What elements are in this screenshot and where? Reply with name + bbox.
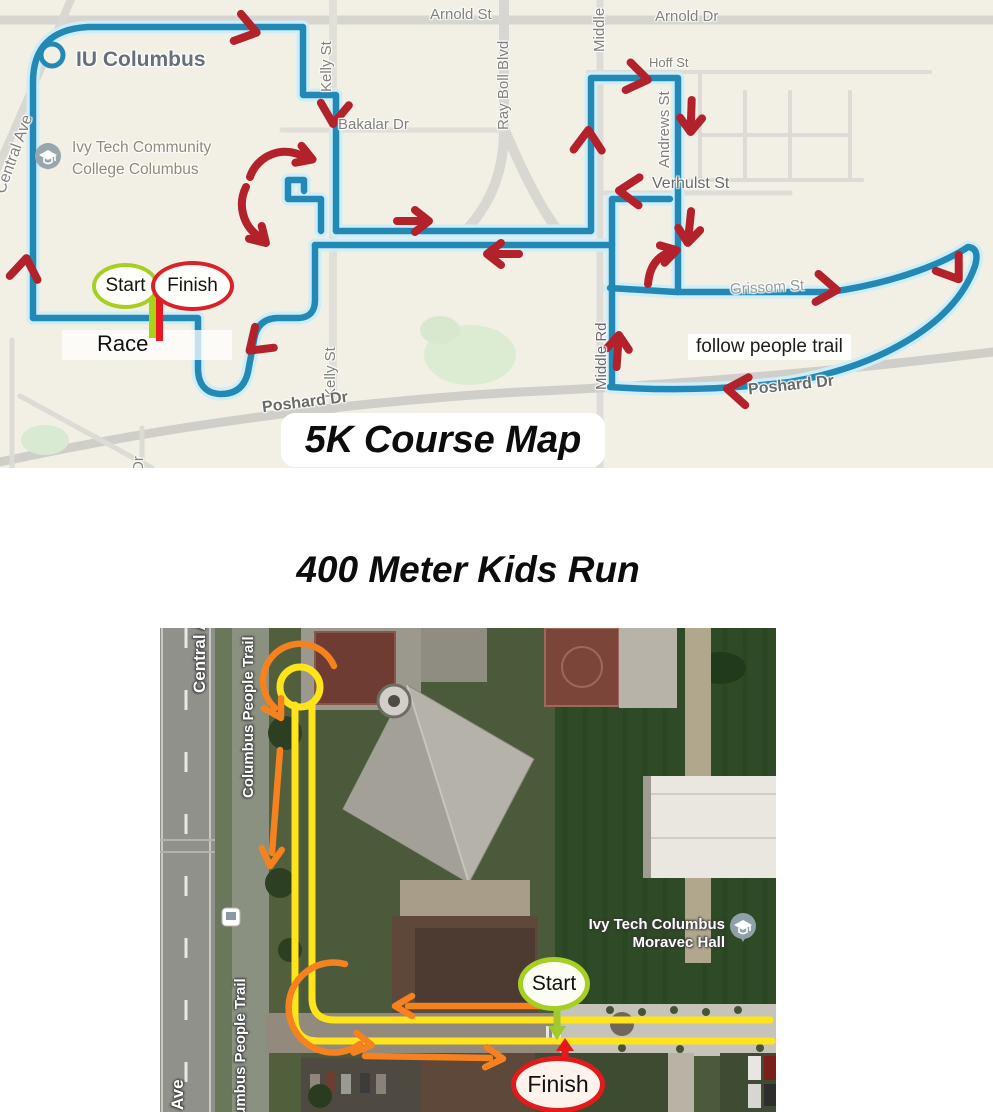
start-badge-kids: Start [518,957,590,1011]
street-verhulst-st: Verhulst St [652,175,729,193]
moravec-hall-label-line2: Moravec Hall [575,934,725,951]
street-arnold-st: Arnold St [430,6,492,23]
race-label: Race [97,331,148,357]
start-badge-5k-label: Start [105,275,145,297]
finish-badge-kids: Finish [511,1056,605,1112]
course-map-title-box: 5K Course Map [281,413,605,467]
finish-badge-kids-label: Finish [527,1071,588,1098]
course-map-title: 5K Course Map [305,419,582,462]
street-dr-partial: Dr [130,456,147,468]
moravec-hall-label-line1: Ivy Tech Columbus [575,916,725,933]
central-ave-label-south: Ave [168,1079,188,1110]
race-flyer: Arnold St Arnold Dr Central Ave Kelly St… [0,0,993,1112]
street-middle-rd: Middle Rd [593,322,610,390]
place-ivy-tech: Ivy Tech Community College Columbus [72,137,252,182]
start-badge-5k: Start [92,263,159,309]
street-kelly-st-north: Kelly St [318,41,335,92]
finish-badge-5k-label: Finish [167,275,218,297]
course-map-5k: Arnold St Arnold Dr Central Ave Kelly St… [0,0,993,468]
trail-label-south: Columbus People Trail [232,978,249,1112]
street-andrews-st: Andrews St [656,91,673,168]
roundabout-icon [41,44,63,66]
finish-badge-5k: Finish [151,261,234,311]
loop-arrow-bottom [242,187,258,236]
place-iu-columbus: IU Columbus [76,48,206,72]
central-ave-label-north: Central Ave [190,628,210,693]
kids-run-map: Columbus People Trail Columbus People Tr… [160,628,776,1112]
trail-label-north: Columbus People Trail [240,636,257,798]
street-ray-boll-blvd: Ray Boll Blvd [495,41,512,130]
street-hoff-st: Hoff St [649,55,689,70]
street-arnold-dr: Arnold Dr [655,8,718,25]
kids-run-title: 400 Meter Kids Run [160,549,776,591]
street-middle-partial: Middle [591,8,608,52]
follow-people-trail-label: follow people trail [688,334,851,360]
street-bakalar-dr: Bakalar Dr [338,116,409,133]
start-badge-kids-label: Start [532,972,576,996]
